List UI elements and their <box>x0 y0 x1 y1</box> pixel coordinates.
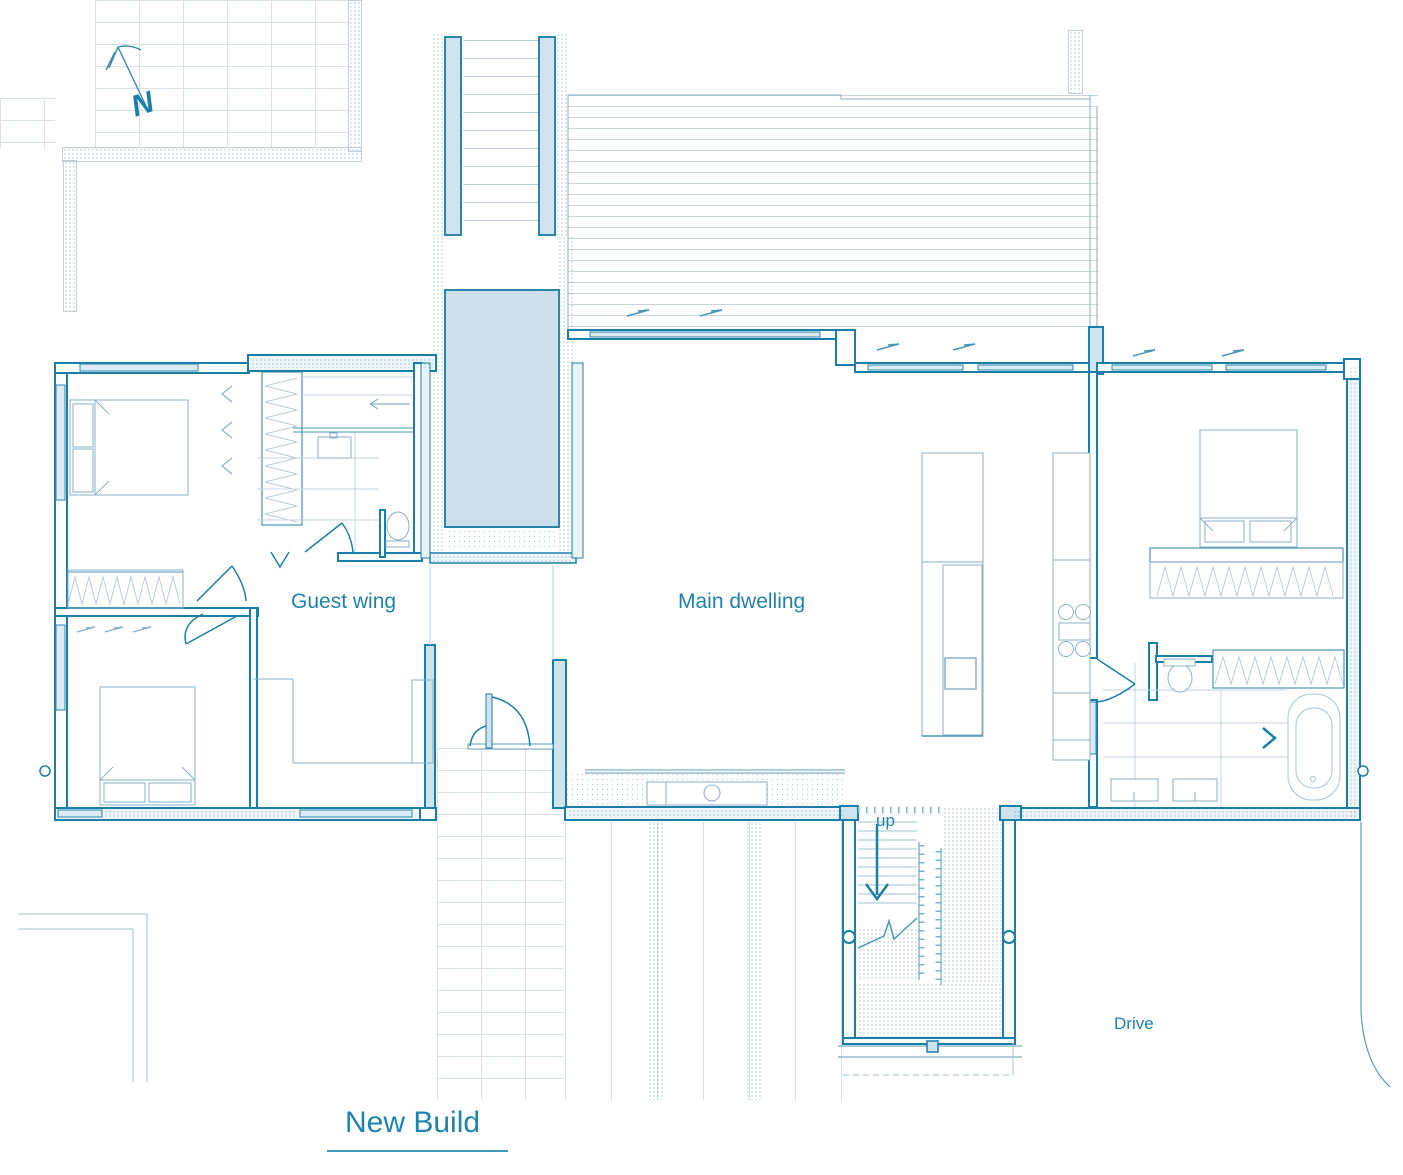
bathtub-icon <box>1288 694 1340 800</box>
door-entry <box>470 694 530 748</box>
plan-title: New Build <box>345 1106 480 1140</box>
wall-texture <box>432 555 574 562</box>
toilet-icon <box>1168 664 1192 692</box>
bed-guest-1 <box>70 400 188 495</box>
door-bedroom1 <box>197 566 246 601</box>
swimming-pool <box>430 290 576 563</box>
toilet-icon <box>387 512 409 540</box>
label-drive: Drive <box>1114 1014 1154 1034</box>
wardrobe-guest-1 <box>68 570 183 608</box>
wall-texture <box>104 810 296 818</box>
ensuite-bathroom <box>1103 659 1340 807</box>
bed-guest-2 <box>100 687 195 805</box>
title-underline <box>327 1150 508 1152</box>
door-bedroom2 <box>185 614 237 644</box>
bath-arrow-icon <box>1263 728 1275 748</box>
site-boundary-curve <box>1361 822 1390 1087</box>
floor-plan: N Guest wing Main dwelling up Drive New … <box>0 0 1403 1175</box>
wardrobe-master-2 <box>1213 650 1344 688</box>
plan-linework <box>0 0 1403 1175</box>
staircase <box>838 810 1022 1075</box>
wall-texture <box>1349 366 1358 817</box>
door-guest-bath <box>305 523 353 553</box>
label-guest-wing: Guest wing <box>291 590 396 614</box>
wall-texture <box>1013 810 1357 818</box>
kitchen-wall-counter <box>1053 453 1091 760</box>
doors <box>185 523 1135 748</box>
closet-guest-bath <box>265 378 297 522</box>
wardrobes <box>68 378 1344 688</box>
outdoor-bench <box>647 782 767 805</box>
wardrobe-master-1 <box>1150 548 1343 598</box>
kitchen-island <box>922 453 983 736</box>
label-stairs-up: up <box>876 811 895 831</box>
kitchen <box>585 453 1091 805</box>
wall-texture <box>568 809 843 818</box>
door-meeting-mark <box>271 552 289 567</box>
door-ensuite <box>1097 659 1135 702</box>
guest-bathroom <box>257 377 414 552</box>
label-main-dwelling: Main dwelling <box>678 590 805 614</box>
shower-arrow-icon <box>370 399 410 409</box>
bed-master <box>1200 430 1297 547</box>
wall-texture <box>251 358 433 368</box>
walls <box>55 327 1360 1044</box>
